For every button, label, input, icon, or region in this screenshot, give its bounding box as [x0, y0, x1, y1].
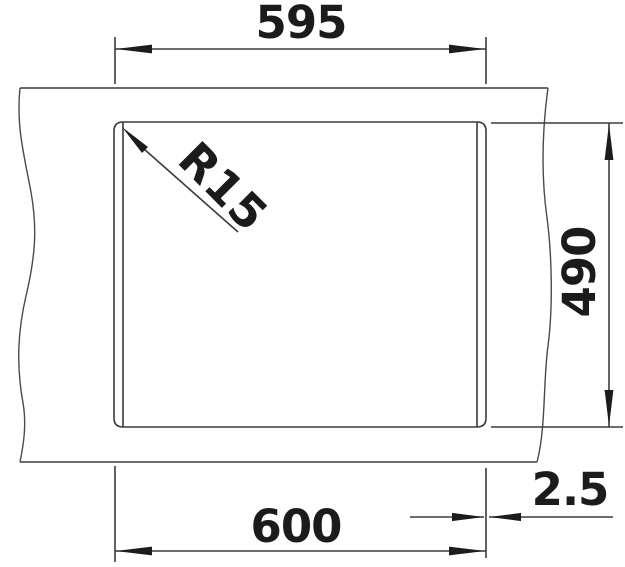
arrowhead-left-icon	[116, 45, 152, 54]
arrowhead-right-icon	[449, 547, 485, 556]
arrowhead-right-icon	[452, 513, 484, 521]
dimension-right-height-label: 490	[553, 227, 606, 318]
dimension-edge-offset: 2.5	[410, 463, 613, 521]
arrowhead-right-icon	[449, 45, 485, 54]
dimension-top-width: 595	[115, 0, 486, 84]
arrowhead-left-icon	[489, 513, 521, 521]
arrowhead-down-icon	[605, 390, 614, 426]
dimension-bottom-width: 600	[115, 466, 486, 562]
corner-radius-label: R15	[168, 131, 279, 242]
arrowhead-up-icon	[605, 124, 614, 160]
dimension-edge-offset-label: 2.5	[532, 463, 609, 516]
radius-callout: R15	[122, 127, 279, 242]
dimension-bottom-width-label: 600	[251, 500, 342, 553]
dimension-right-height: 490	[491, 123, 623, 427]
break-line-right	[537, 88, 551, 462]
countertop-outline	[19, 88, 552, 462]
sink-cutout-dimension-drawing: 595 490 600 2.5	[0, 0, 625, 567]
arrowhead-left-icon	[116, 547, 152, 556]
technical-drawing-canvas: 595 490 600 2.5	[0, 0, 625, 567]
break-line-left	[19, 88, 35, 462]
dimension-top-width-label: 595	[256, 0, 347, 49]
arrowhead-corner-icon	[122, 127, 148, 153]
